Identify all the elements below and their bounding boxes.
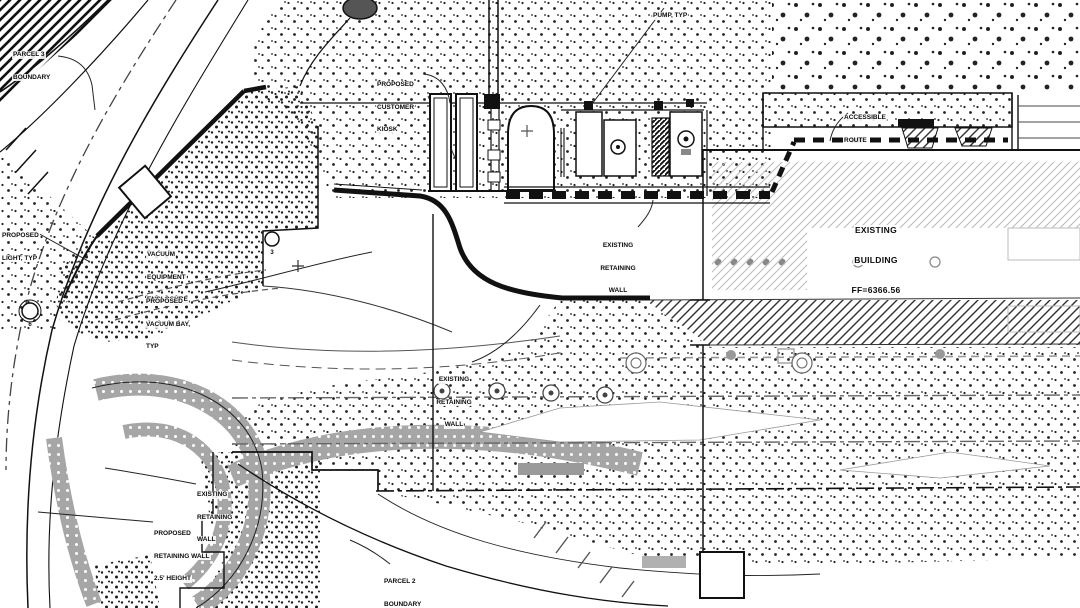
label-existing-retaining-wall-mid: EXISTING RETAINING WALL xyxy=(430,361,478,436)
label-existing-building: EXISTING BUILDING FF=6366.56 xyxy=(824,205,928,305)
label-proposed-vacuum-bay: PROPOSED VACUUM BAY, TYP xyxy=(145,283,191,358)
label-proposed-customer-kiosk: PROPOSED CUSTOMER KIOSK xyxy=(376,66,415,141)
label-proposed-light: PROPOSED LIGHT, TYP xyxy=(1,217,40,270)
label-parcel-2-boundary: PARCEL 2 BOUNDARY xyxy=(383,563,422,608)
label-pump-typ: PUMP, TYP xyxy=(652,0,688,27)
label-accessible-route: ACCESSIBLE ROUTE xyxy=(843,99,887,152)
label-existing-retaining-wall-upper: EXISTING RETAINING WALL xyxy=(594,227,642,302)
keynote-6-number: 6 xyxy=(26,308,34,336)
site-plan-sheet: PARCEL 3 BOUNDARY PROPOSED LIGHT, TYP VA… xyxy=(0,0,1080,608)
label-parcel-3-boundary: PARCEL 3 BOUNDARY xyxy=(12,36,51,89)
keynote-3-number: 3 xyxy=(268,236,276,264)
label-proposed-retaining-wall: PROPOSED RETAINING WALL 2.5' HEIGHT xyxy=(153,515,211,590)
